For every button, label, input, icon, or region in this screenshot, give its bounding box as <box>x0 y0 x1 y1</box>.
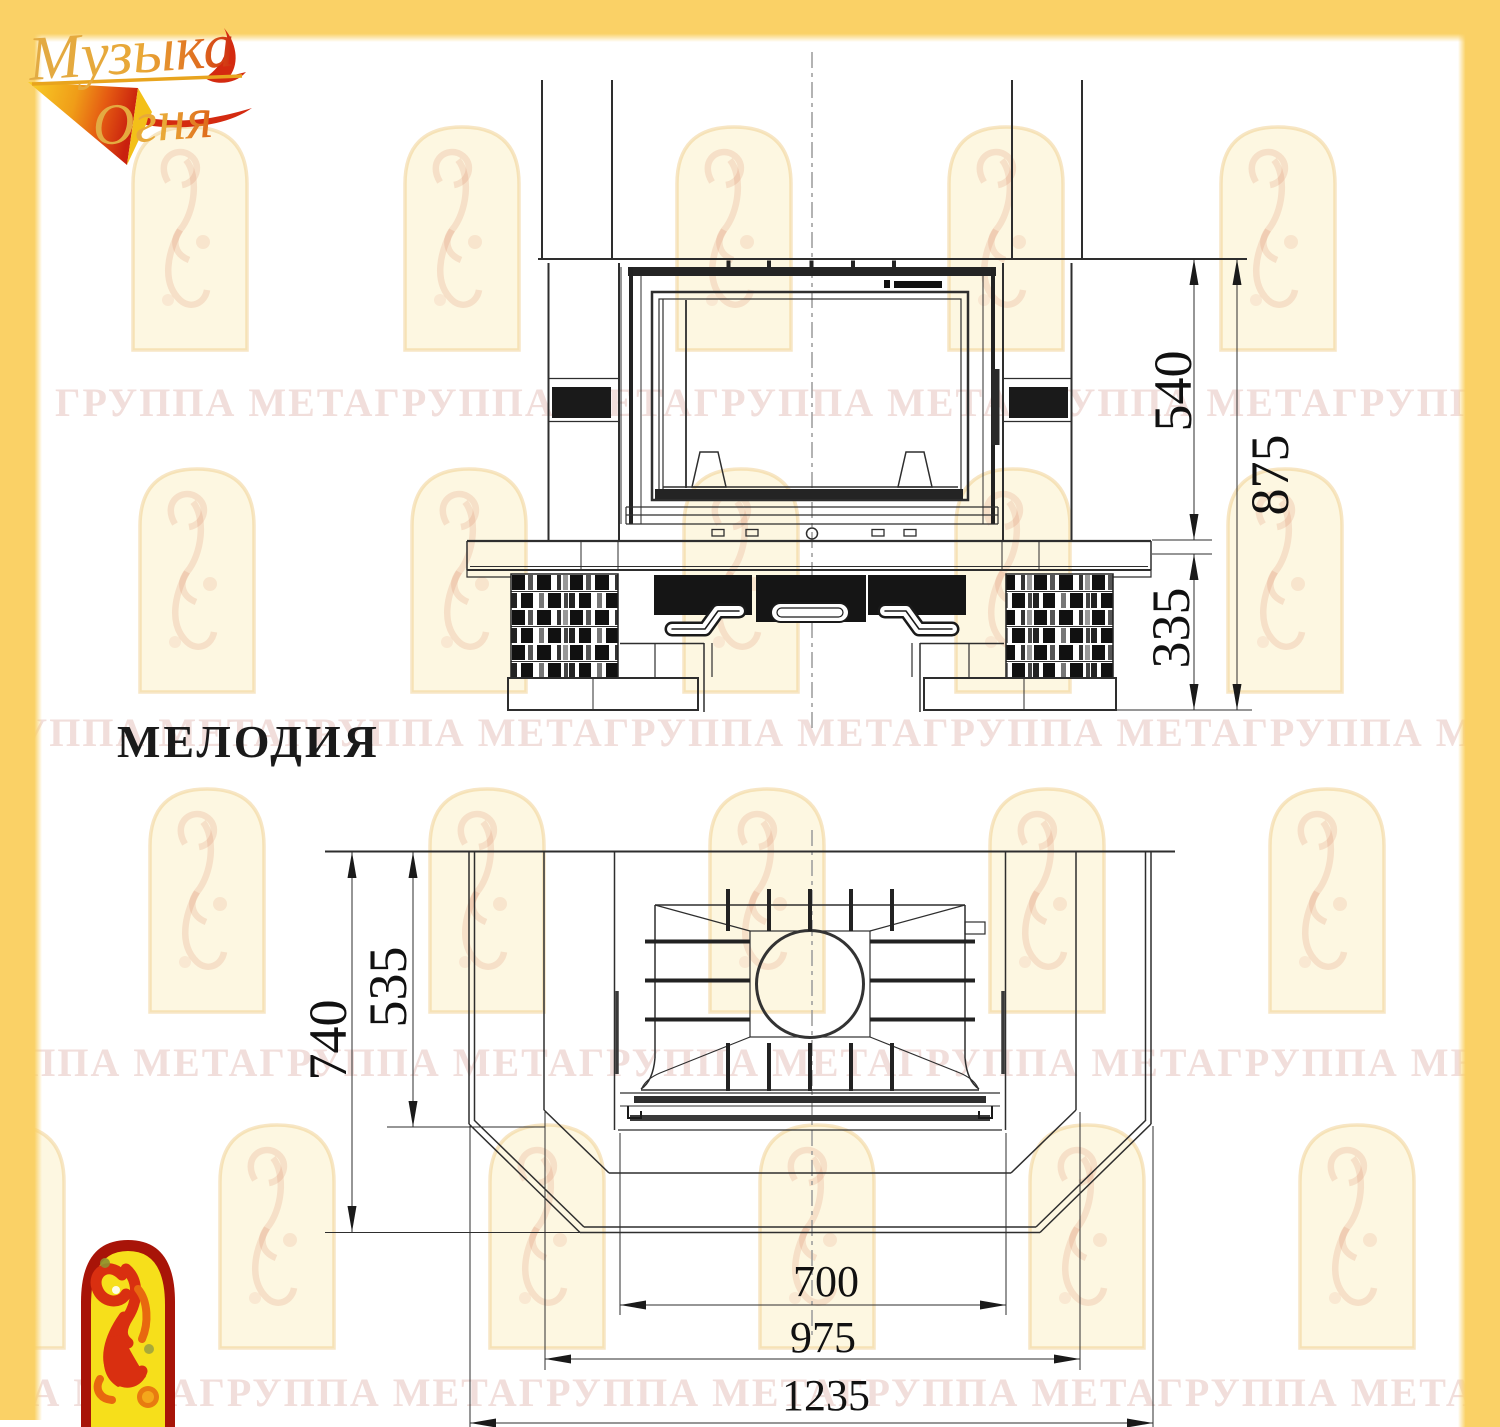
svg-text:540: 540 <box>1143 351 1203 432</box>
svg-text:740: 740 <box>298 1000 358 1081</box>
svg-text:335: 335 <box>1141 588 1201 669</box>
svg-text:1235: 1235 <box>782 1371 870 1420</box>
svg-text:975: 975 <box>790 1313 856 1362</box>
svg-text:875: 875 <box>1240 435 1300 516</box>
svg-text:535: 535 <box>358 947 418 1028</box>
svg-text:700: 700 <box>793 1257 859 1306</box>
